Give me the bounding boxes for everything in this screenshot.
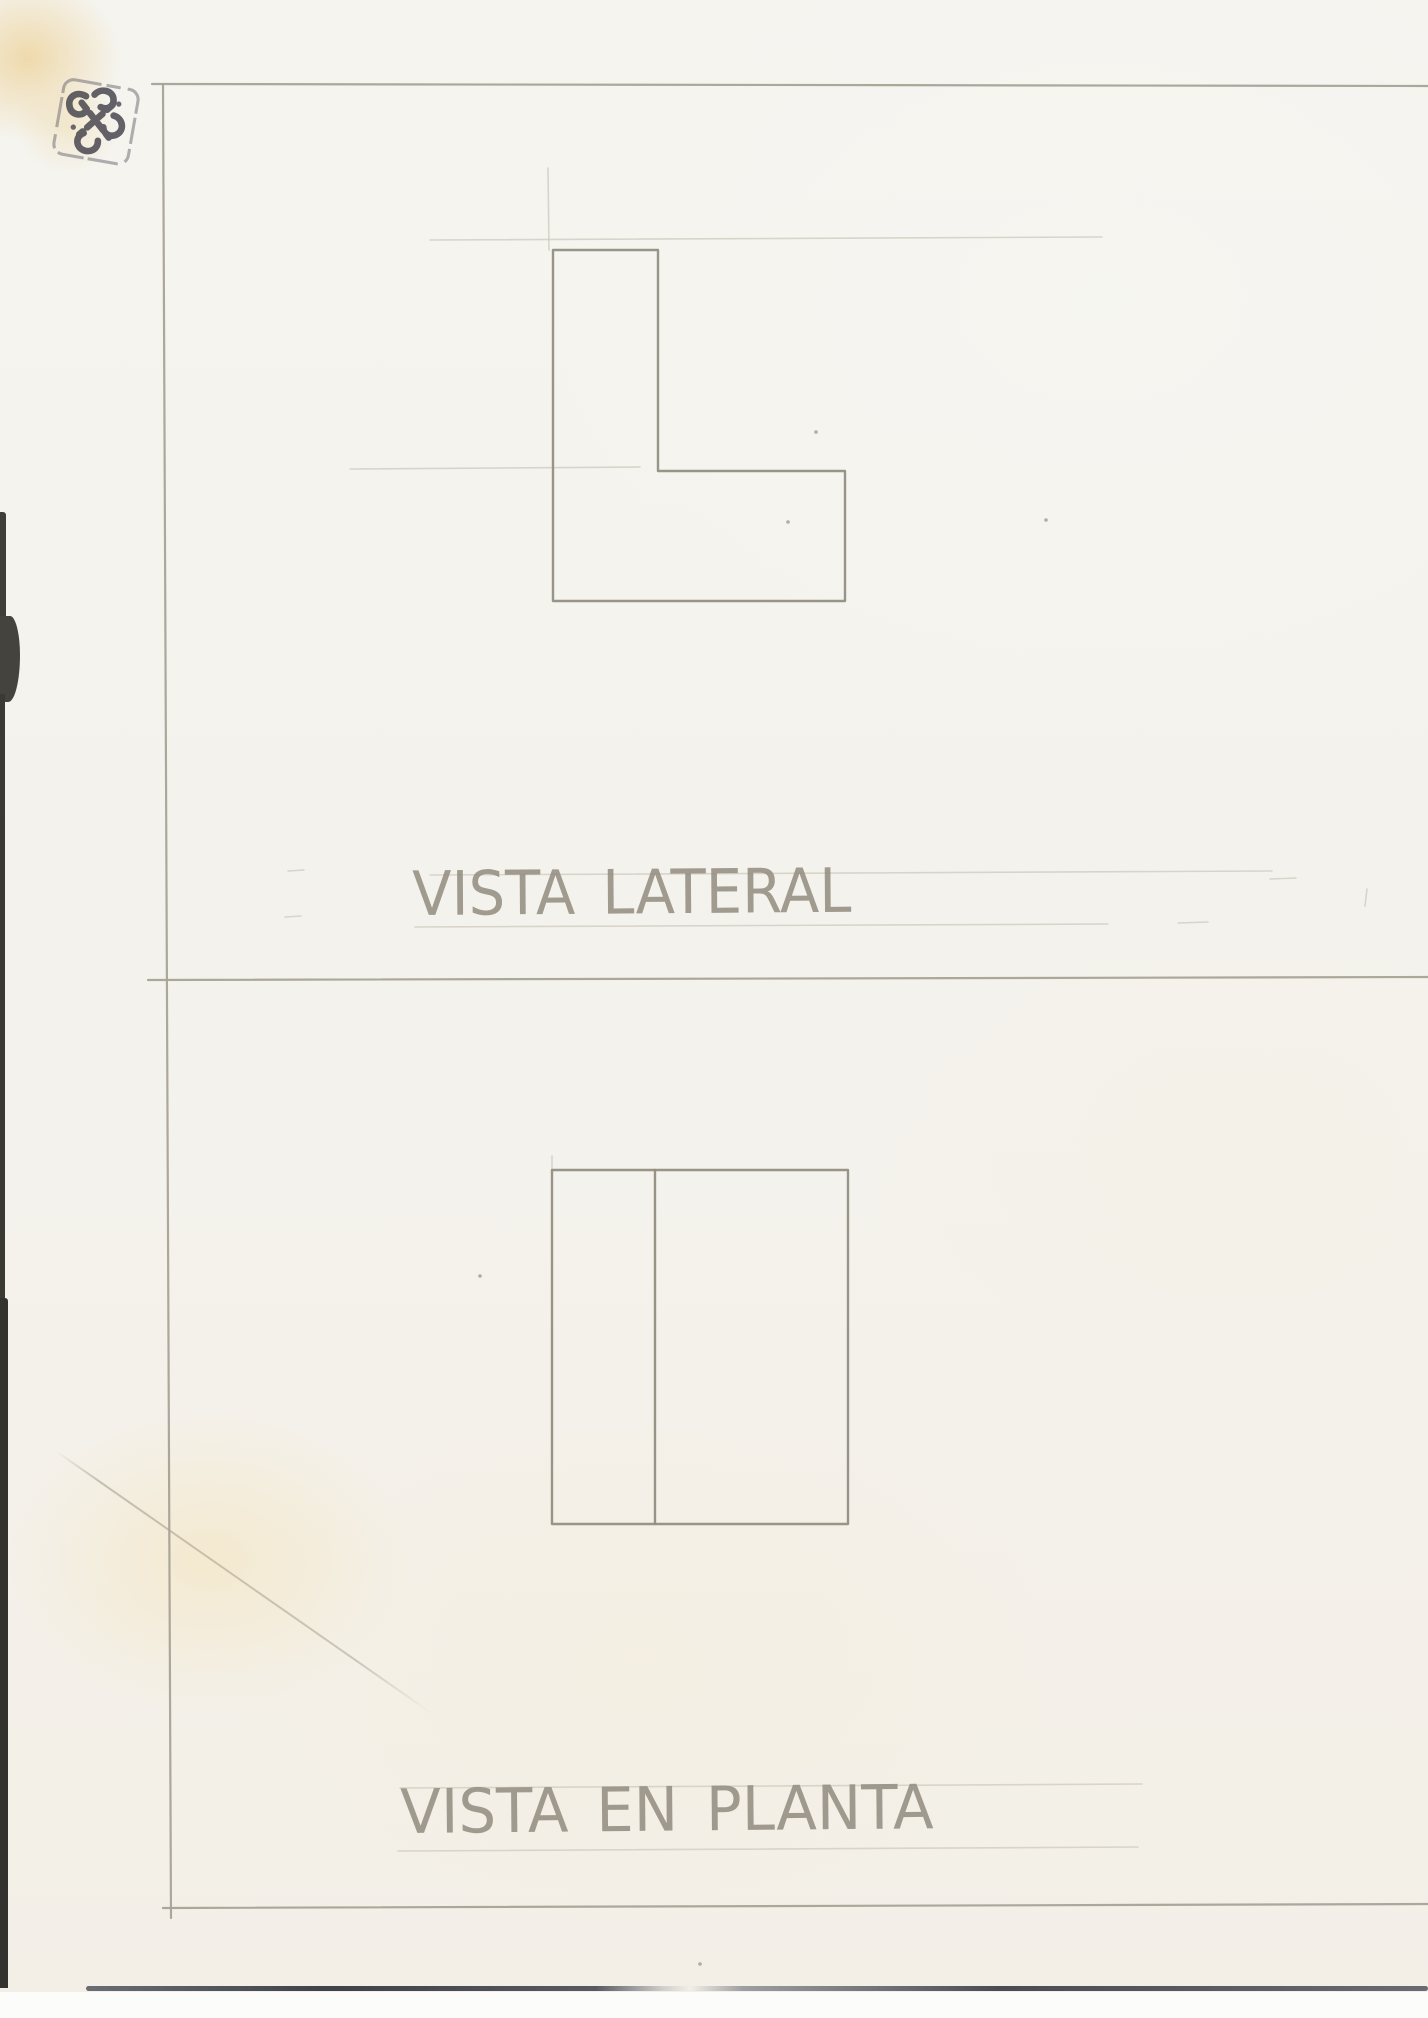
- pencil-speck: [786, 520, 790, 524]
- paper-bottom-edge: [86, 1986, 1428, 1991]
- faint-guide-line: [350, 467, 640, 469]
- faint-guide-line: [285, 916, 301, 917]
- faint-guide-line: [1270, 878, 1296, 879]
- pencil-speck: [478, 1274, 482, 1278]
- lateral-view-l-shape: [553, 250, 845, 601]
- faint-guide-line: [548, 168, 549, 250]
- scan-edge-shadow: [0, 1298, 8, 1988]
- faint-guide-line: [288, 870, 304, 871]
- lateral-view-label: VISTA LATERAL: [412, 861, 852, 925]
- pencil-drawing-layer: [0, 0, 1428, 2018]
- faint-guide-line: [1365, 889, 1367, 906]
- frame-border-line: [152, 84, 1428, 86]
- frame-border-line: [148, 977, 1428, 980]
- frame-border-line: [163, 1904, 1428, 1908]
- scanner-bed-background: [0, 1992, 1428, 2018]
- faint-guide-line: [430, 237, 1102, 240]
- planta-view-label: VISTA EN PLANTA: [400, 1777, 934, 1843]
- faint-guide-line: [398, 1847, 1138, 1851]
- scan-edge-shadow: [0, 512, 6, 630]
- faint-guide-line: [1178, 922, 1208, 923]
- scanned-paper: VISTA LATERAL VISTA EN PLANTA: [0, 0, 1428, 2018]
- scan-edge-shadow: [0, 694, 5, 1306]
- pencil-speck: [1044, 518, 1048, 522]
- pencil-speck: [814, 430, 818, 434]
- planta-view-rectangle: [552, 1170, 848, 1524]
- frame-border-line: [163, 84, 171, 1918]
- endless-knot-stamp-icon: [40, 64, 154, 179]
- pencil-speck: [698, 1962, 702, 1966]
